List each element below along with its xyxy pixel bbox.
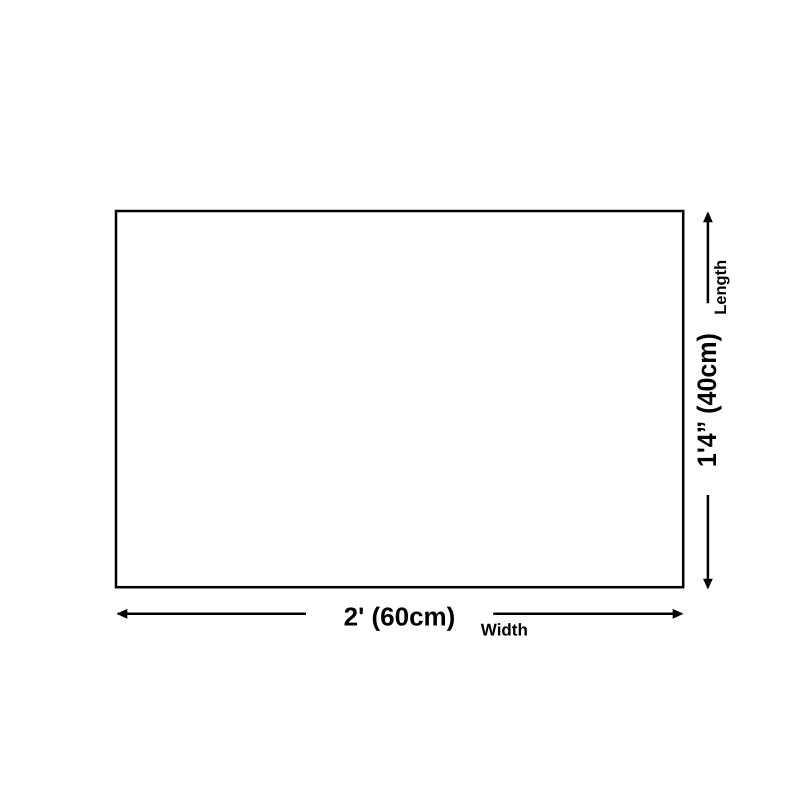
svg-text:1'4” (40cm): 1'4” (40cm) (692, 333, 722, 467)
svg-text:2' (60cm): 2' (60cm) (344, 601, 456, 631)
svg-text:Length: Length (712, 260, 730, 315)
svg-text:Width: Width (481, 620, 528, 639)
